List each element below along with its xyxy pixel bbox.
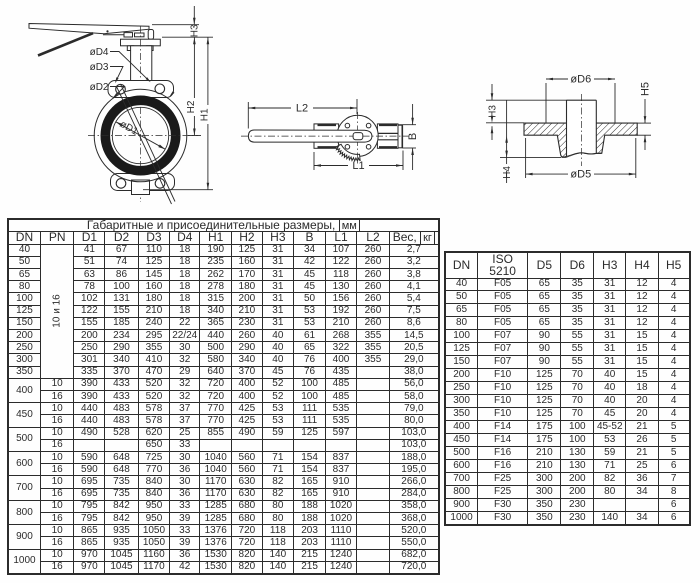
svg-text:øD5: øD5 <box>570 169 591 181</box>
svg-text:øD4: øD4 <box>90 47 109 58</box>
svg-text:H2: H2 <box>186 100 197 113</box>
svg-text:H4: H4 <box>502 166 513 179</box>
svg-text:H3: H3 <box>190 24 201 37</box>
svg-text:L2: L2 <box>296 103 308 115</box>
svg-text:øD3: øD3 <box>90 62 109 73</box>
svg-text:øD2: øD2 <box>90 82 109 93</box>
svg-text:B: B <box>407 133 419 140</box>
svg-text:L1: L1 <box>352 160 364 172</box>
svg-text:øD6: øD6 <box>570 74 591 86</box>
svg-text:H1: H1 <box>200 108 211 121</box>
svg-text:øD1: øD1 <box>118 119 140 138</box>
svg-text:H5: H5 <box>640 82 652 96</box>
